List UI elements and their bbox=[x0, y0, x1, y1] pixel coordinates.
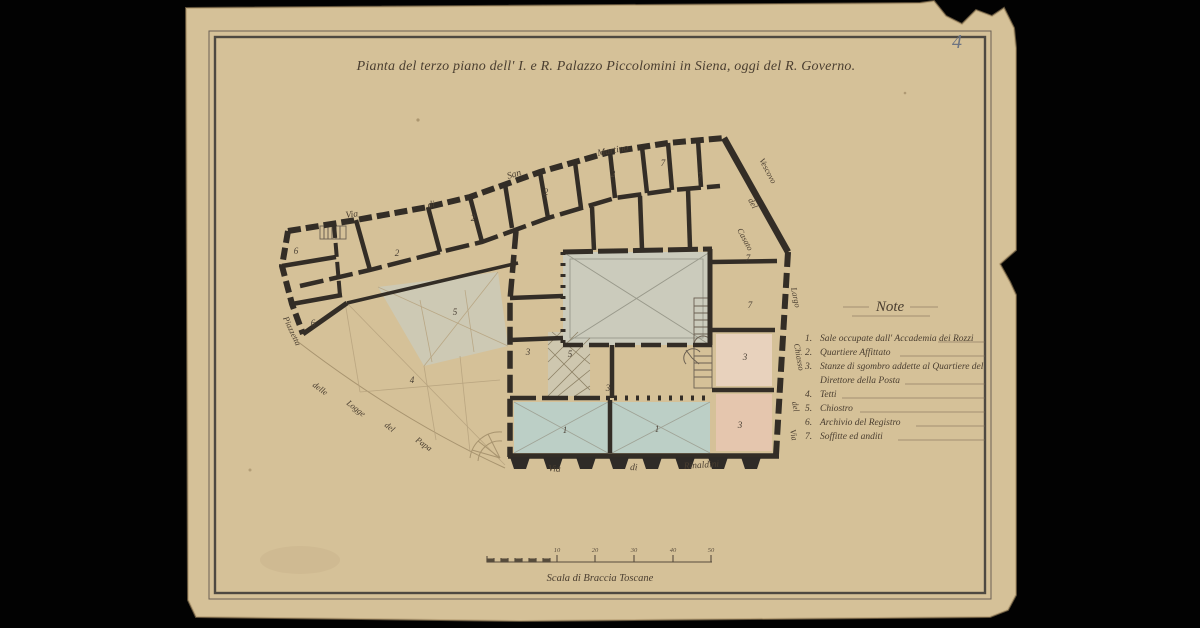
room-number: 7 bbox=[748, 300, 753, 310]
room-number: 2 bbox=[611, 169, 616, 179]
room-number: 2 bbox=[471, 213, 476, 223]
room-number: 6 bbox=[311, 318, 316, 328]
street-label: Via bbox=[788, 429, 800, 442]
room-number: 5 bbox=[568, 349, 573, 359]
room-number: 7 bbox=[746, 253, 751, 263]
street-label: di bbox=[630, 463, 638, 473]
room-number: 3 bbox=[605, 383, 611, 393]
room-number: 7 bbox=[661, 158, 666, 168]
legend-item-text: Chiostro bbox=[820, 404, 853, 414]
room-number: 6 bbox=[294, 246, 299, 256]
room-number: 3 bbox=[737, 420, 743, 430]
room-number: 4 bbox=[410, 375, 415, 385]
legend-item-num: 1. bbox=[805, 334, 812, 344]
street-label: Via bbox=[345, 209, 359, 221]
paper-speck bbox=[904, 92, 907, 95]
room-number: 3 bbox=[742, 352, 748, 362]
legend-heading: Note bbox=[875, 299, 905, 315]
legend-item-num: 6. bbox=[805, 418, 812, 428]
room-number: 7 bbox=[698, 171, 703, 181]
room-number: 3 bbox=[525, 347, 531, 357]
scale-tick-label: 20 bbox=[592, 547, 599, 554]
legend-item-num: 4. bbox=[805, 390, 812, 400]
legend-item-num: 5. bbox=[805, 404, 812, 414]
scale-bar-label: Scala di Braccia Toscane bbox=[547, 573, 654, 584]
scale-tick-label: 50 bbox=[708, 547, 715, 554]
scale-tick-label: 40 bbox=[670, 547, 677, 554]
legend-item-text: Direttore della Posta bbox=[819, 376, 900, 386]
drawing-canvas: 4 Pianta del terzo piano dell' I. e R. P… bbox=[0, 0, 1200, 628]
paper-stain bbox=[260, 546, 340, 574]
room-number: 1 bbox=[655, 424, 660, 434]
legend-item-text: Soffitte ed anditi bbox=[820, 431, 883, 442]
scale-tick-label: 10 bbox=[554, 547, 561, 554]
room-number: 5 bbox=[453, 307, 458, 317]
page-number: 4 bbox=[952, 31, 962, 53]
street-label: Via bbox=[548, 464, 561, 475]
legend-item-text: Tetti bbox=[820, 390, 837, 400]
legend-item-text: Archivio del Registro bbox=[819, 418, 901, 428]
legend-item-text: Sale occupate dall' Accademia dei Rozzi bbox=[820, 334, 974, 344]
scanned-sheet: 4 Pianta del terzo piano dell' I. e R. P… bbox=[0, 0, 1200, 628]
scale-tick-label: 30 bbox=[630, 547, 638, 554]
legend-item-num: 2. bbox=[805, 348, 812, 358]
legend-item-text: Quartiere Affittato bbox=[820, 347, 891, 358]
legend-item-num: 7. bbox=[805, 432, 812, 442]
paper-speck bbox=[416, 118, 419, 121]
sheet-title: Pianta del terzo piano dell' I. e R. Pal… bbox=[356, 59, 856, 74]
room-number: 1 bbox=[563, 425, 568, 435]
legend-item-text: Stanze di sgombro addette al Quartiere d… bbox=[820, 362, 984, 372]
paper-speck bbox=[249, 469, 252, 472]
room-number: 2 bbox=[395, 248, 400, 258]
legend-item-num: 3. bbox=[804, 362, 812, 372]
room-number: 2 bbox=[544, 187, 549, 197]
posta-room-wash bbox=[716, 394, 772, 451]
